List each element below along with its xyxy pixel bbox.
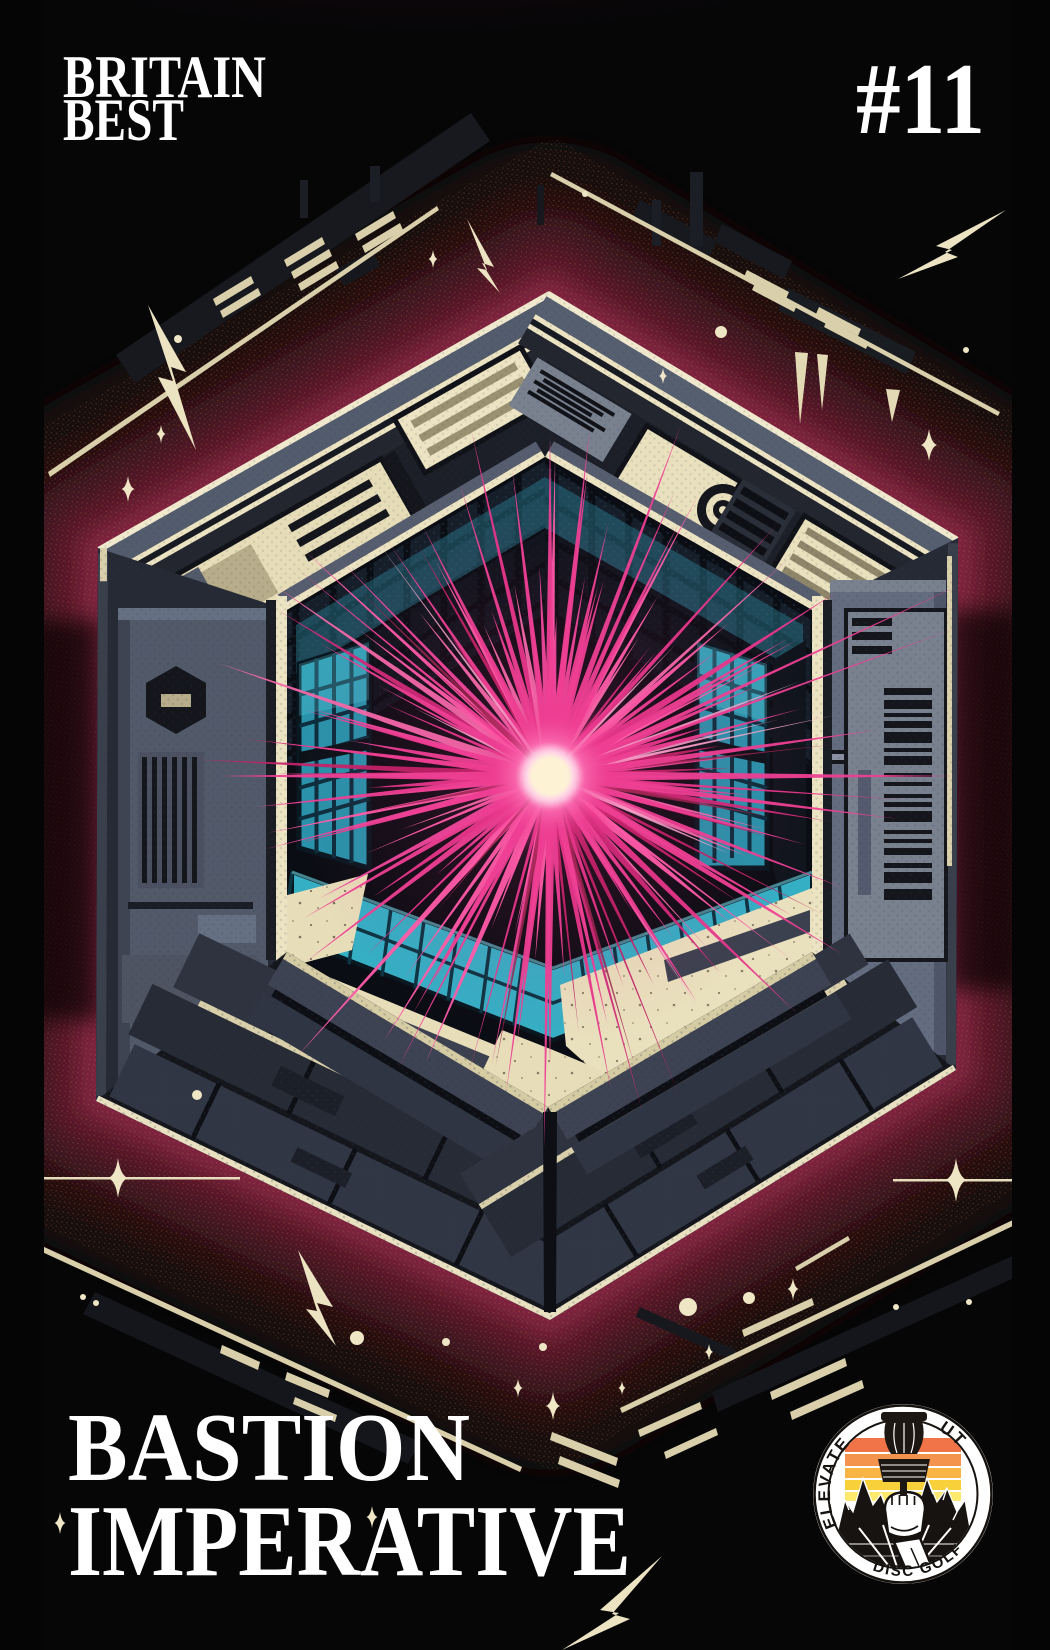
svg-text:IMPERATIVE: IMPERATIVE <box>68 1485 631 1598</box>
svg-text:#11: #11 <box>856 43 985 156</box>
svg-text:BEST: BEST <box>63 87 184 153</box>
